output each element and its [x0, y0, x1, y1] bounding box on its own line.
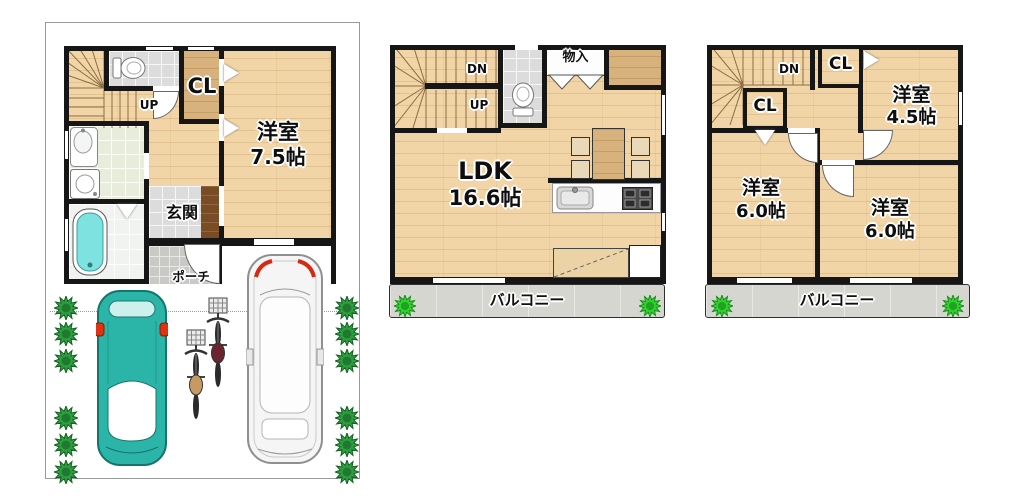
toilet-fixture — [511, 81, 535, 117]
room-name-label: 洋室 — [840, 198, 940, 219]
wall — [707, 45, 712, 284]
window — [64, 219, 69, 251]
washing-machine-fixture — [70, 169, 100, 199]
window — [433, 277, 505, 284]
closet-label: CL — [187, 74, 217, 99]
wall — [498, 45, 503, 128]
stairs-up-label: UP — [464, 99, 494, 112]
shrub-icon — [54, 322, 78, 346]
wall — [604, 85, 666, 90]
shrub-icon — [335, 296, 359, 320]
storage-label: 物入 — [547, 51, 604, 65]
teal-car — [96, 289, 168, 467]
room-name-label: 洋室 — [863, 85, 960, 106]
wall — [503, 123, 547, 128]
floor2-plan: DN UP 物入 LDK 16.6帖 バルコニー — [388, 45, 669, 321]
stove — [622, 187, 653, 210]
shrub-icon — [394, 295, 416, 317]
counter-nook — [609, 45, 661, 85]
wall — [64, 279, 149, 284]
toilet-fixture — [112, 55, 146, 81]
wall — [64, 121, 149, 126]
window — [146, 46, 173, 51]
stairs-down-label: DN — [775, 63, 803, 76]
wall — [810, 45, 815, 90]
closet-label: CL — [743, 97, 787, 115]
window — [661, 95, 666, 135]
floor3-plan: DN CL CL 洋室 4.5帖 洋室 6.0帖 洋室 6.0帖 バルコニー — [705, 45, 973, 321]
stair-opening — [437, 128, 467, 133]
white-car — [246, 253, 324, 465]
room-size-label: 4.5帖 — [863, 108, 960, 127]
storage-folding-doors — [548, 74, 604, 90]
window — [661, 213, 666, 231]
bathtub-fixture — [72, 208, 108, 276]
wall — [604, 45, 609, 88]
closet-label: CL — [818, 55, 863, 73]
ldk-size-label: 16.6帖 — [425, 187, 545, 210]
wall — [179, 119, 224, 124]
room-name-label: 洋室 — [228, 121, 328, 144]
room-size-label: 7.5帖 — [228, 147, 328, 169]
dining-chair — [631, 160, 650, 179]
shrub-icon — [335, 433, 359, 457]
doorway — [144, 153, 149, 179]
shrub-icon — [711, 295, 733, 317]
shrub-icon — [335, 406, 359, 430]
room-size-label: 6.0帖 — [711, 202, 811, 221]
balcony-label: バルコニー — [457, 292, 597, 308]
shrub-icon — [54, 433, 78, 457]
shrub-icon — [335, 322, 359, 346]
dining-table — [592, 128, 625, 180]
wall — [148, 238, 336, 246]
window — [188, 46, 214, 51]
window — [254, 238, 294, 246]
porch-label: ポーチ — [166, 270, 216, 284]
stair-mid-wall — [425, 83, 501, 89]
window — [64, 131, 69, 159]
kitchen-sink — [556, 186, 594, 210]
window — [737, 277, 792, 284]
shrub-icon — [942, 295, 964, 317]
floor1-plan: UP CL 洋室 7.5帖 玄関 ポーチ — [45, 22, 360, 479]
room-name-label: 洋室 — [711, 178, 811, 199]
shrub-icon — [639, 295, 661, 317]
dining-chair — [631, 137, 650, 156]
shrub-icon — [54, 460, 78, 484]
bicycle — [182, 329, 210, 421]
shrub-icon — [335, 460, 359, 484]
window — [850, 277, 912, 284]
entrance-label: 玄関 — [142, 204, 222, 221]
dining-chair — [571, 137, 590, 156]
washbasin-fixture — [70, 127, 98, 167]
closet-door — [224, 64, 239, 82]
balcony-label: バルコニー — [757, 292, 917, 308]
bathroom-door — [117, 204, 137, 219]
under-stair-storage — [553, 248, 629, 278]
wall — [179, 46, 184, 124]
room-size-label: 6.0帖 — [840, 222, 940, 241]
shrub-icon — [54, 349, 78, 373]
floor-plan-canvas: UP CL 洋室 7.5帖 玄関 ポーチ — [0, 0, 1024, 502]
stairs-down-label: DN — [462, 63, 492, 76]
closet-door — [864, 51, 879, 69]
shrub-icon — [54, 296, 78, 320]
wall — [104, 46, 109, 91]
wall — [390, 277, 666, 284]
shrub-icon — [54, 406, 78, 430]
wall — [390, 45, 395, 284]
refrigerator-space — [629, 245, 661, 278]
shrub-icon — [335, 349, 359, 373]
toilet-door-opening — [515, 45, 538, 50]
wall — [661, 45, 666, 284]
stairs-up-label: UP — [134, 99, 164, 112]
dining-chair — [571, 160, 590, 179]
closet-door — [755, 130, 775, 145]
wall — [331, 46, 336, 284]
ldk-name-label: LDK — [435, 159, 535, 185]
